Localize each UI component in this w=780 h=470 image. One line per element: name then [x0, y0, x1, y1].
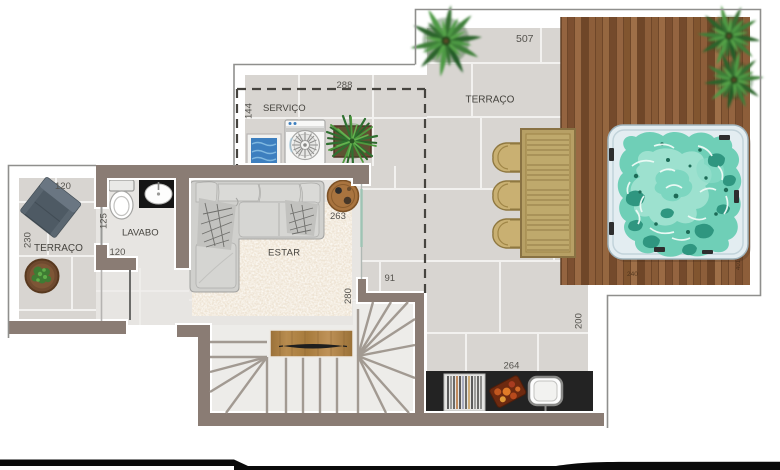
- svg-text:200: 200: [574, 313, 585, 329]
- svg-text:507: 507: [516, 33, 534, 45]
- svg-text:120: 120: [110, 247, 126, 258]
- svg-text:120: 120: [55, 181, 71, 192]
- svg-text:ESTAR: ESTAR: [268, 248, 300, 259]
- svg-text:240: 240: [627, 271, 638, 278]
- svg-text:263: 263: [330, 211, 346, 222]
- svg-text:230: 230: [23, 232, 34, 248]
- svg-text:264: 264: [504, 361, 520, 372]
- svg-text:288: 288: [337, 80, 353, 91]
- svg-text:125: 125: [99, 213, 110, 229]
- svg-text:TERRAÇO: TERRAÇO: [34, 243, 83, 254]
- svg-text:144: 144: [244, 103, 255, 119]
- svg-text:LAVABO: LAVABO: [122, 228, 159, 239]
- svg-text:TERRAÇO: TERRAÇO: [466, 95, 515, 106]
- svg-text:SERVIÇO: SERVIÇO: [263, 103, 306, 114]
- svg-text:280: 280: [343, 288, 354, 304]
- svg-text:91: 91: [385, 273, 396, 284]
